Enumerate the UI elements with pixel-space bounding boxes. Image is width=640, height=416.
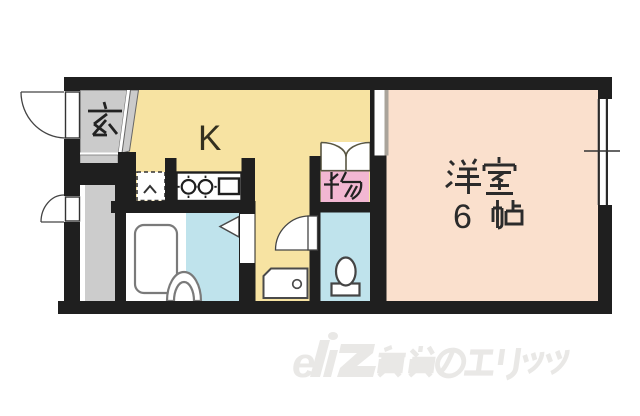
svg-text:6: 6 [453,198,472,236]
svg-text:K: K [198,119,221,158]
svg-text:e: e [292,339,315,386]
